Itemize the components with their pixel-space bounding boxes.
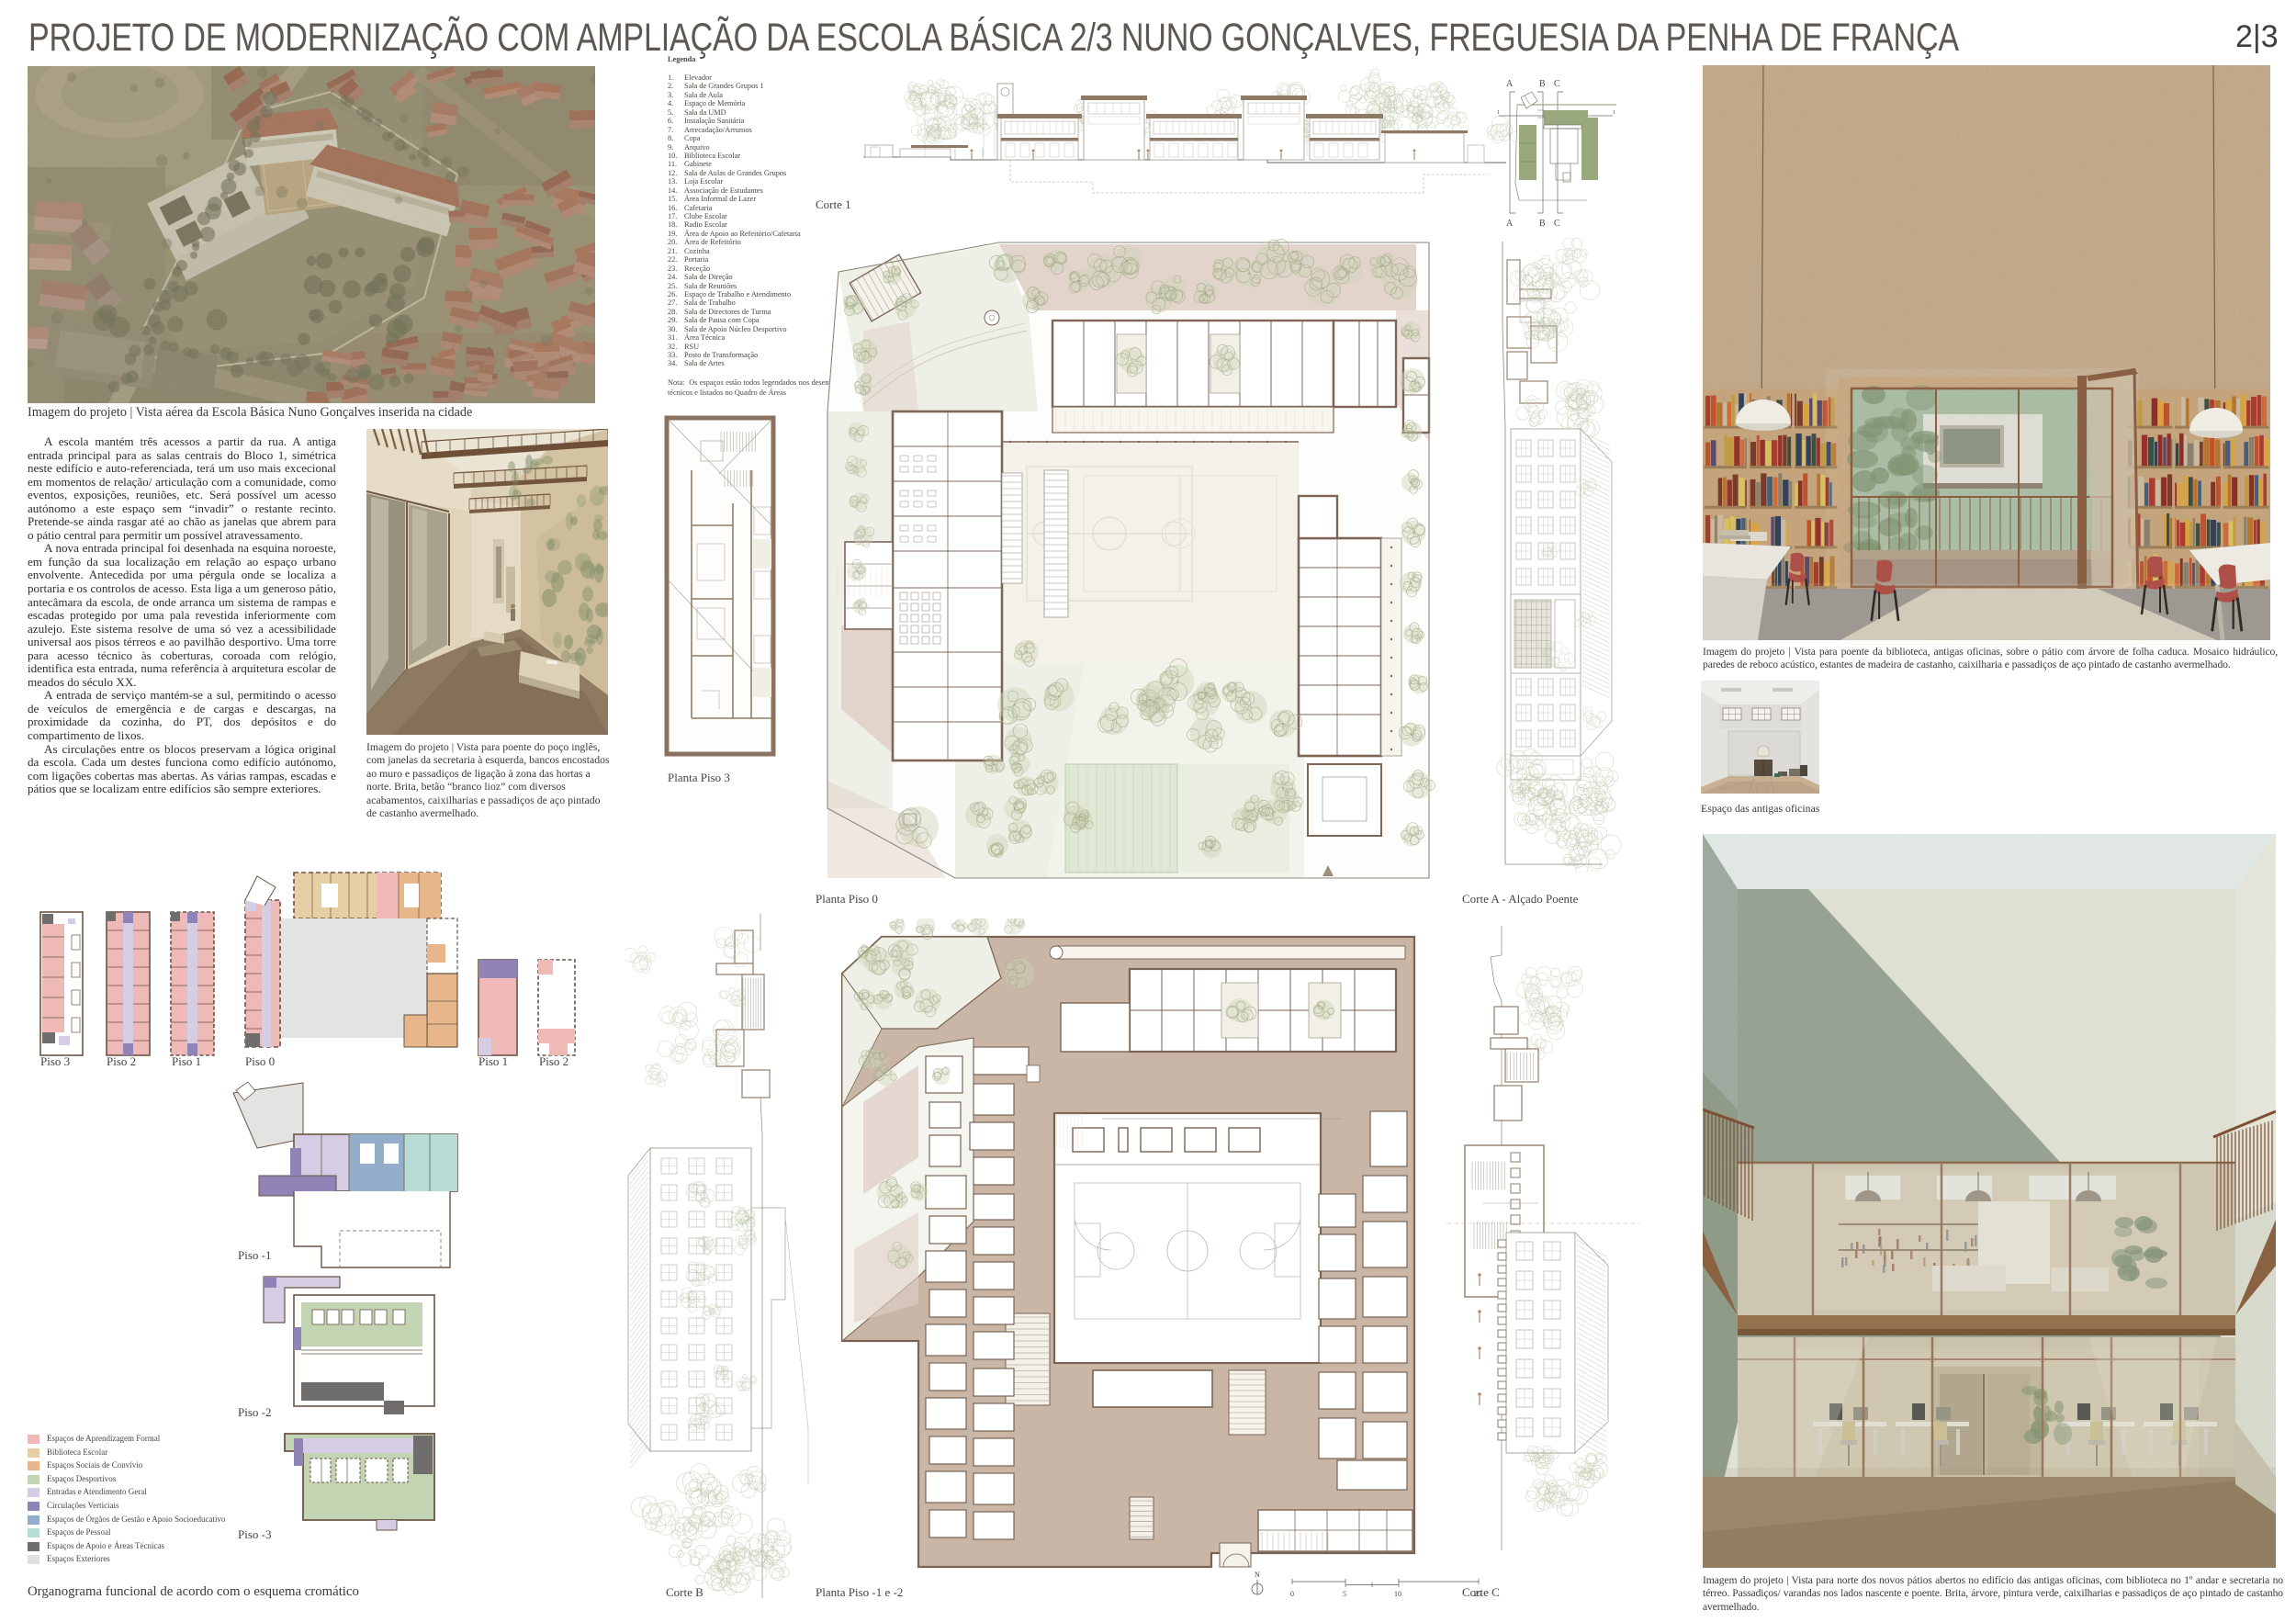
svg-text:N: N bbox=[1255, 1571, 1260, 1579]
svg-text:10: 10 bbox=[1394, 1590, 1401, 1598]
svg-text:1: 1 bbox=[1613, 110, 1615, 116]
svg-text:C: C bbox=[1554, 79, 1560, 89]
svg-text:A: A bbox=[1506, 79, 1514, 89]
svg-text:B: B bbox=[1539, 219, 1546, 229]
svg-text:25: 25 bbox=[1474, 1590, 1481, 1598]
svg-text:C: C bbox=[1554, 219, 1560, 229]
svg-text:B: B bbox=[1539, 79, 1546, 89]
svg-text:5: 5 bbox=[1343, 1590, 1346, 1598]
svg-text:1: 1 bbox=[1497, 110, 1500, 116]
svg-text:A: A bbox=[1506, 219, 1514, 229]
svg-text:0: 0 bbox=[1290, 1590, 1294, 1598]
